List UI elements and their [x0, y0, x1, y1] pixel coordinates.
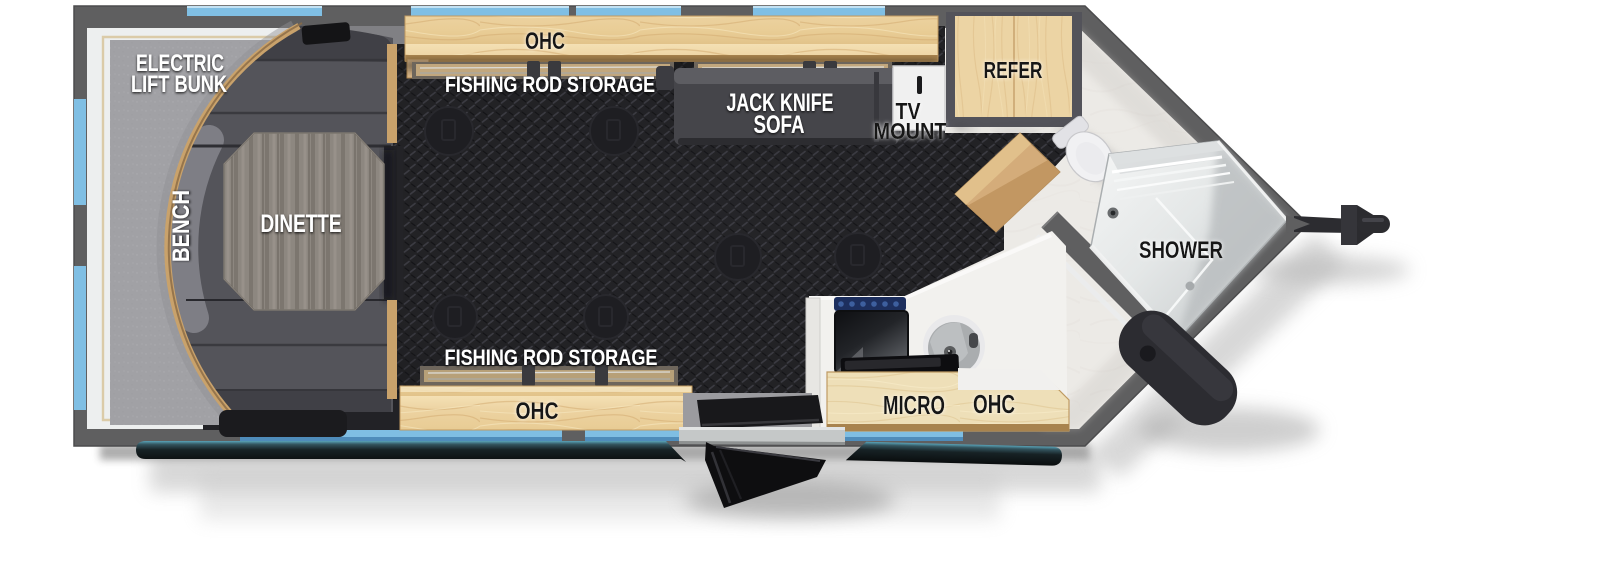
svg-text:SOFA: SOFA — [754, 111, 805, 139]
svg-text:LIFT BUNK: LIFT BUNK — [131, 71, 227, 98]
svg-text:DINETTE: DINETTE — [261, 210, 342, 238]
svg-text:FISHING ROD STORAGE: FISHING ROD STORAGE — [445, 345, 658, 370]
svg-text:BENCH: BENCH — [168, 190, 195, 262]
svg-text:OHC: OHC — [516, 398, 559, 425]
svg-text:REFER: REFER — [984, 57, 1043, 83]
svg-text:MOUNT: MOUNT — [874, 118, 947, 144]
svg-text:FISHING ROD STORAGE: FISHING ROD STORAGE — [445, 72, 655, 97]
svg-text:SHOWER: SHOWER — [1139, 237, 1223, 264]
svg-text:OHC: OHC — [525, 28, 565, 55]
svg-text:MICRO: MICRO — [883, 390, 945, 420]
svg-text:OHC: OHC — [973, 389, 1015, 419]
